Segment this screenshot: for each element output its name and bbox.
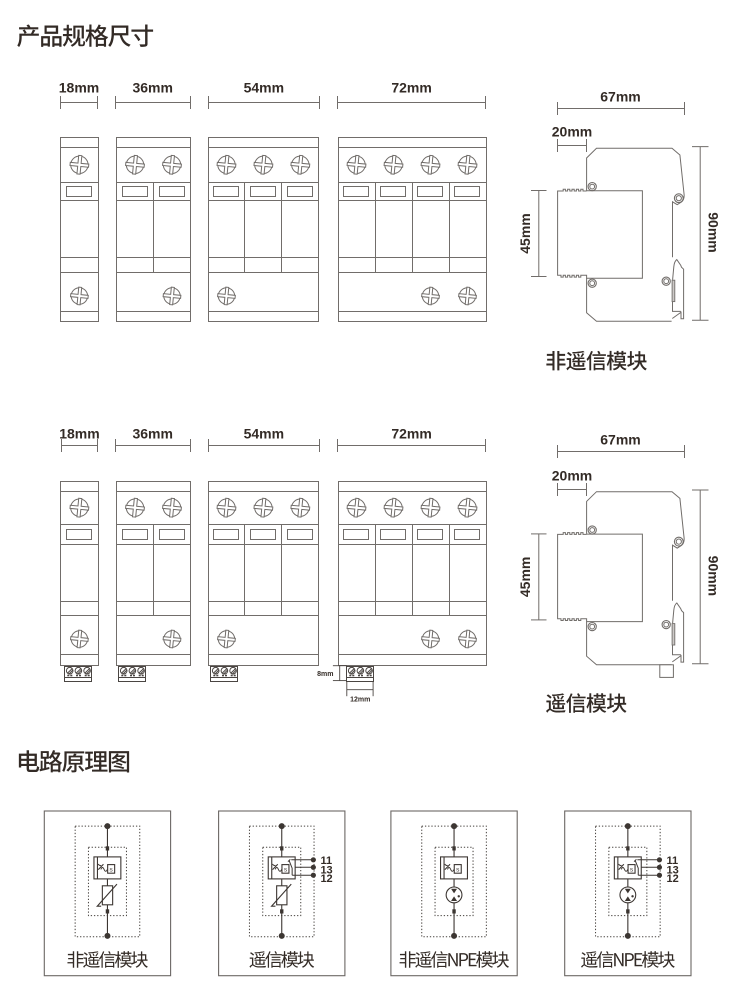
svg-text:12: 12 — [667, 873, 679, 885]
svg-text:18mm: 18mm — [59, 80, 99, 96]
svg-text:8mm: 8mm — [317, 671, 333, 678]
svg-text:20mm: 20mm — [552, 124, 592, 140]
svg-text:90mm: 90mm — [706, 556, 722, 596]
svg-text:45mm: 45mm — [517, 557, 533, 597]
svg-text:12mm: 12mm — [350, 697, 370, 704]
svg-text:54mm: 54mm — [244, 80, 284, 96]
svg-text:12: 12 — [320, 873, 332, 885]
svg-text:36mm: 36mm — [132, 80, 172, 96]
svg-text:20mm: 20mm — [552, 468, 592, 484]
svg-text:36mm: 36mm — [132, 426, 172, 442]
svg-text:18mm: 18mm — [59, 426, 99, 442]
svg-text:67mm: 67mm — [600, 431, 640, 447]
svg-text:72mm: 72mm — [391, 426, 431, 442]
svg-text:54mm: 54mm — [244, 426, 284, 442]
svg-text:90mm: 90mm — [706, 212, 722, 252]
svg-text:72mm: 72mm — [391, 80, 431, 96]
svg-text:67mm: 67mm — [600, 88, 640, 104]
svg-text:45mm: 45mm — [517, 213, 533, 253]
